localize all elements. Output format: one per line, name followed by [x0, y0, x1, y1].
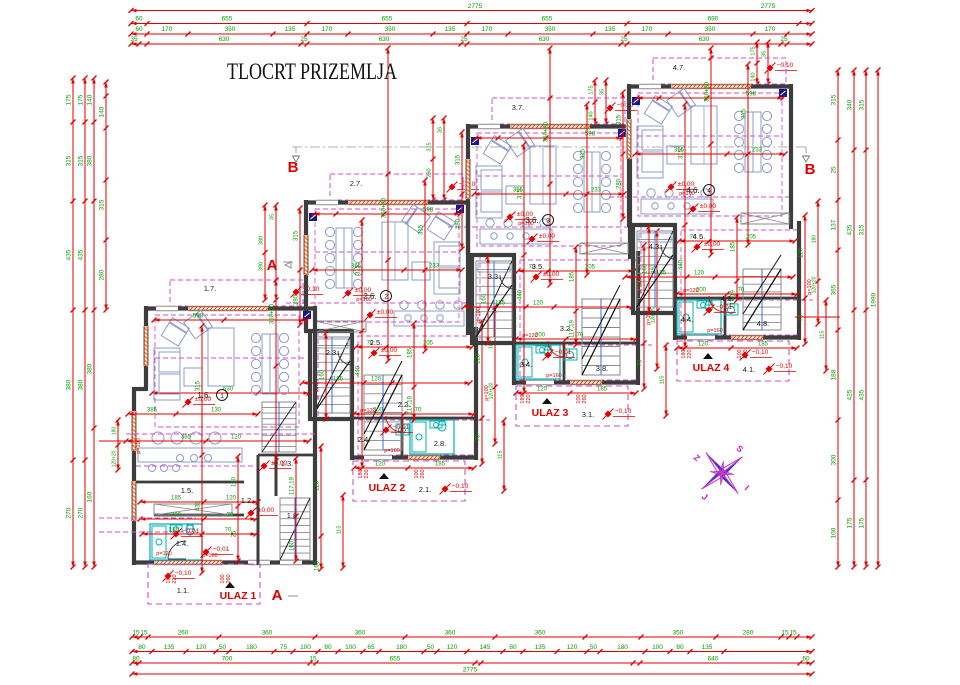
- svg-text:700: 700: [222, 656, 233, 663]
- svg-text:70: 70: [638, 359, 644, 366]
- svg-text:135: 135: [285, 26, 296, 33]
- svg-text:655: 655: [542, 16, 553, 23]
- svg-text:160: 160: [643, 263, 649, 274]
- svg-text:440: 440: [518, 289, 524, 300]
- svg-text:p=100: p=100: [484, 385, 490, 400]
- svg-text:315: 315: [99, 199, 106, 210]
- svg-text:15: 15: [309, 656, 317, 663]
- svg-text:1.4.: 1.4.: [176, 539, 189, 548]
- svg-text:185: 185: [597, 387, 608, 393]
- svg-text:385: 385: [181, 435, 192, 441]
- svg-text:220: 220: [364, 469, 370, 478]
- svg-text:70: 70: [476, 434, 482, 441]
- svg-text:4.7.: 4.7.: [673, 63, 686, 72]
- svg-text:p=100: p=100: [637, 277, 643, 292]
- svg-text:50: 50: [590, 644, 598, 651]
- svg-text:160: 160: [482, 293, 488, 304]
- svg-text:±0,00: ±0,00: [700, 203, 717, 210]
- svg-text:233: 233: [591, 188, 602, 194]
- svg-text:315: 315: [196, 380, 202, 391]
- svg-text:220: 220: [172, 574, 178, 583]
- svg-text:−0,10: −0,10: [776, 363, 793, 370]
- svg-text:80: 80: [324, 644, 332, 651]
- svg-text:140: 140: [589, 111, 595, 120]
- svg-text:185: 185: [333, 377, 344, 383]
- svg-text:270: 270: [78, 507, 85, 518]
- svg-text:175: 175: [589, 85, 595, 94]
- svg-text:350: 350: [225, 26, 236, 33]
- svg-text:260: 260: [226, 574, 232, 583]
- svg-text:1.1.: 1.1.: [177, 586, 190, 595]
- svg-text:2.1.: 2.1.: [419, 485, 432, 494]
- svg-text:2.3.: 2.3.: [326, 348, 339, 357]
- svg-text:25: 25: [232, 530, 238, 537]
- svg-text:3.7.: 3.7.: [512, 103, 525, 112]
- svg-text:35: 35: [438, 127, 444, 133]
- svg-text:350+20: 350+20: [382, 197, 388, 218]
- svg-text:425: 425: [847, 389, 854, 400]
- svg-text:70: 70: [415, 408, 422, 414]
- svg-text:2.4.: 2.4.: [358, 435, 371, 444]
- svg-text:35: 35: [130, 36, 138, 43]
- svg-text:−0,01: −0,01: [716, 304, 733, 311]
- svg-text:185: 185: [758, 342, 769, 348]
- svg-text:p=160: p=160: [707, 328, 722, 334]
- svg-text:350: 350: [673, 630, 684, 637]
- svg-text:2775: 2775: [761, 3, 776, 10]
- svg-text:70: 70: [227, 513, 234, 519]
- svg-text:185: 185: [435, 462, 446, 468]
- svg-text:120: 120: [231, 435, 242, 441]
- svg-text:p=160: p=160: [384, 448, 399, 454]
- svg-text:160: 160: [315, 560, 321, 571]
- svg-text:380: 380: [87, 363, 94, 374]
- svg-text:350: 350: [545, 26, 556, 33]
- svg-text:655: 655: [222, 16, 233, 23]
- svg-text:180: 180: [617, 644, 628, 651]
- svg-text:315: 315: [617, 114, 623, 125]
- svg-text:B: B: [805, 161, 816, 178]
- svg-text:115: 115: [660, 376, 666, 385]
- svg-text:3: 3: [546, 218, 550, 225]
- svg-text:±0,00: ±0,00: [271, 460, 288, 467]
- svg-text:3.1.: 3.1.: [582, 410, 595, 419]
- svg-text:360: 360: [535, 630, 546, 637]
- svg-text:±0,00: ±0,00: [195, 396, 212, 403]
- svg-text:4.8.: 4.8.: [757, 319, 770, 328]
- svg-text:350+20: 350+20: [544, 121, 550, 142]
- svg-text:2.8.: 2.8.: [434, 439, 447, 448]
- svg-text:ULAZ 1: ULAZ 1: [220, 590, 257, 602]
- svg-text:2: 2: [384, 294, 388, 301]
- svg-text:115: 115: [820, 331, 826, 340]
- svg-text:60: 60: [135, 26, 143, 33]
- svg-text:A: A: [267, 257, 278, 274]
- svg-text:100: 100: [345, 644, 356, 651]
- svg-text:170: 170: [482, 26, 493, 33]
- svg-text:300: 300: [831, 454, 838, 465]
- svg-text:3.3.: 3.3.: [488, 272, 501, 281]
- svg-text:170: 170: [642, 26, 653, 33]
- svg-text:115: 115: [498, 451, 504, 460]
- svg-text:180: 180: [812, 235, 818, 244]
- svg-text:630: 630: [223, 387, 234, 393]
- svg-text:280: 280: [617, 178, 623, 189]
- svg-text:±0,00: ±0,00: [258, 507, 275, 514]
- svg-text:115: 115: [337, 526, 343, 535]
- svg-text:175: 175: [78, 94, 85, 105]
- svg-text:360: 360: [262, 630, 273, 637]
- svg-text:±0,00: ±0,00: [543, 271, 560, 278]
- svg-text:70: 70: [738, 288, 745, 294]
- svg-text:315: 315: [831, 94, 838, 105]
- svg-text:630: 630: [379, 36, 390, 43]
- svg-text:A: A: [272, 587, 283, 604]
- svg-text:175: 175: [751, 46, 757, 55]
- svg-text:175: 175: [847, 517, 854, 528]
- svg-text:170: 170: [162, 26, 173, 33]
- svg-text:185: 185: [408, 347, 414, 358]
- svg-text:±0,00: ±0,00: [704, 241, 721, 248]
- svg-text:1: 1: [220, 393, 224, 400]
- svg-text:655: 655: [390, 656, 401, 663]
- svg-text:185: 185: [570, 271, 576, 282]
- svg-text:−0,10: −0,10: [452, 483, 469, 490]
- svg-text:120: 120: [799, 247, 805, 258]
- svg-text:170: 170: [322, 26, 333, 33]
- svg-text:315: 315: [456, 154, 462, 165]
- svg-text:1.7.: 1.7.: [204, 284, 217, 293]
- svg-text:3.4.: 3.4.: [520, 360, 533, 369]
- svg-text:630: 630: [699, 36, 710, 43]
- svg-text:135: 135: [605, 26, 616, 33]
- svg-text:365: 365: [513, 188, 524, 194]
- svg-text:p=120: p=120: [156, 551, 171, 557]
- svg-text:140: 140: [87, 94, 94, 105]
- svg-text:220: 220: [687, 349, 693, 358]
- svg-text:120: 120: [476, 353, 482, 364]
- svg-text:185: 185: [731, 241, 737, 252]
- svg-text:p=100: p=100: [476, 307, 482, 322]
- svg-text:120: 120: [694, 271, 705, 277]
- svg-text:25: 25: [620, 36, 628, 43]
- svg-text:280: 280: [294, 294, 300, 305]
- svg-text:598: 598: [193, 313, 204, 320]
- svg-text:440: 440: [356, 365, 362, 376]
- svg-text:175: 175: [859, 517, 866, 528]
- svg-text:350+20: 350+20: [705, 81, 711, 102]
- svg-text:50: 50: [219, 644, 227, 651]
- svg-text:15: 15: [140, 630, 148, 637]
- svg-text:170: 170: [765, 26, 776, 33]
- svg-text:−0,01: −0,01: [393, 424, 410, 431]
- svg-text:315: 315: [66, 155, 73, 166]
- svg-text:±0,00: ±0,00: [381, 347, 398, 354]
- svg-text:598: 598: [423, 207, 434, 214]
- svg-text:365: 365: [351, 264, 362, 270]
- svg-text:p=160: p=160: [546, 373, 561, 379]
- svg-text:100: 100: [831, 527, 838, 538]
- svg-text:188: 188: [831, 369, 838, 380]
- svg-text:1.5.: 1.5.: [181, 486, 194, 495]
- svg-text:p=120: p=120: [522, 333, 537, 339]
- svg-text:135: 135: [445, 26, 456, 33]
- svg-text:p=160: p=160: [679, 191, 694, 197]
- svg-text:160: 160: [290, 540, 296, 551]
- svg-text:630: 630: [219, 36, 230, 43]
- svg-text:±0,00: ±0,00: [539, 233, 556, 240]
- svg-text:p=120: p=120: [360, 408, 375, 414]
- svg-text:260: 260: [420, 469, 426, 478]
- svg-text:p=160: p=160: [518, 221, 533, 227]
- svg-text:−0,01: −0,01: [555, 349, 572, 356]
- svg-text:120: 120: [315, 480, 321, 491]
- svg-text:280: 280: [99, 269, 106, 280]
- svg-text:25: 25: [831, 166, 838, 174]
- svg-text:380: 380: [87, 155, 94, 166]
- svg-text:ULAZ 2: ULAZ 2: [369, 482, 406, 494]
- svg-text:205: 205: [423, 341, 434, 347]
- svg-text:35: 35: [600, 89, 606, 95]
- svg-text:205: 205: [746, 235, 757, 241]
- svg-text:655: 655: [382, 16, 393, 23]
- svg-text:185: 185: [656, 271, 667, 277]
- svg-text:2.2.: 2.2.: [398, 400, 411, 409]
- svg-text:180: 180: [112, 427, 118, 436]
- svg-text:233: 233: [752, 148, 763, 154]
- svg-text:640: 640: [708, 656, 719, 663]
- svg-text:315: 315: [294, 230, 300, 241]
- svg-text:120: 120: [567, 644, 578, 651]
- svg-text:ULAZ 4: ULAZ 4: [693, 362, 730, 374]
- svg-text:120: 120: [232, 476, 238, 487]
- svg-text:315: 315: [581, 148, 587, 159]
- svg-text:350: 350: [705, 26, 716, 33]
- svg-text:145: 145: [480, 644, 491, 651]
- svg-text:350+20: 350+20: [270, 303, 276, 324]
- svg-text:175: 175: [66, 94, 73, 105]
- svg-text:390: 390: [259, 262, 265, 271]
- svg-text:75: 75: [280, 644, 288, 651]
- svg-text:350: 350: [385, 26, 396, 33]
- svg-text:−0,10: −0,10: [777, 62, 794, 69]
- svg-text:380: 380: [78, 379, 85, 390]
- svg-text:50: 50: [427, 644, 435, 651]
- svg-text:440: 440: [679, 259, 685, 270]
- svg-text:120: 120: [196, 644, 207, 651]
- svg-text:15: 15: [132, 630, 140, 637]
- svg-text:1.2.: 1.2.: [241, 496, 254, 505]
- svg-text:−0,01: −0,01: [213, 546, 230, 553]
- svg-text:360: 360: [445, 630, 456, 637]
- svg-text:315: 315: [78, 155, 85, 166]
- svg-text:25: 25: [460, 36, 468, 43]
- svg-text:65: 65: [367, 644, 375, 651]
- svg-text:630: 630: [539, 36, 550, 43]
- svg-text:35: 35: [762, 51, 768, 57]
- svg-text:315: 315: [742, 108, 748, 119]
- svg-text:60: 60: [135, 16, 143, 23]
- svg-text:280: 280: [427, 168, 433, 177]
- svg-text:135: 135: [164, 644, 175, 651]
- svg-text:120: 120: [226, 496, 237, 502]
- svg-text:385: 385: [147, 408, 158, 414]
- svg-text:380: 380: [66, 379, 73, 390]
- svg-text:3.2.: 3.2.: [560, 324, 573, 333]
- svg-text:435: 435: [66, 249, 73, 260]
- svg-text:70: 70: [799, 314, 805, 321]
- svg-text:690: 690: [708, 16, 719, 23]
- svg-text:260: 260: [743, 349, 749, 358]
- svg-text:120+20: 120+20: [112, 450, 118, 467]
- svg-text:±0,00: ±0,00: [377, 309, 394, 316]
- svg-text:80: 80: [138, 644, 146, 651]
- svg-text:35: 35: [270, 214, 276, 220]
- svg-text:2.7.: 2.7.: [350, 179, 363, 188]
- svg-text:80: 80: [132, 656, 140, 663]
- svg-text:160: 160: [320, 369, 326, 380]
- svg-text:598: 598: [585, 131, 596, 138]
- svg-text:p=100: p=100: [807, 279, 813, 294]
- svg-text:315: 315: [859, 224, 866, 235]
- svg-text:120: 120: [537, 387, 548, 393]
- svg-text:120: 120: [447, 644, 458, 651]
- svg-text:120: 120: [533, 301, 544, 307]
- svg-text:p=160: p=160: [356, 297, 371, 303]
- svg-text:315: 315: [419, 224, 425, 235]
- svg-text:2.5.: 2.5.: [370, 338, 383, 347]
- svg-text:120: 120: [371, 377, 382, 383]
- svg-text:4.4.: 4.4.: [681, 315, 694, 324]
- svg-text:260: 260: [178, 630, 189, 637]
- svg-text:365: 365: [674, 148, 685, 154]
- svg-text:185: 185: [171, 496, 182, 502]
- svg-text:p=120: p=120: [683, 288, 698, 294]
- svg-text:100: 100: [300, 644, 311, 651]
- svg-text:180: 180: [396, 644, 407, 651]
- svg-text:135: 135: [702, 644, 713, 651]
- svg-text:3.8.: 3.8.: [596, 364, 609, 373]
- svg-text:60: 60: [802, 656, 810, 663]
- svg-text:25: 25: [300, 36, 308, 43]
- svg-text:205: 205: [585, 265, 596, 271]
- svg-text:260: 260: [582, 394, 588, 403]
- svg-text:160: 160: [87, 491, 94, 502]
- svg-text:340: 340: [847, 99, 854, 110]
- svg-text:120: 120: [375, 462, 386, 468]
- svg-text:4: 4: [707, 188, 711, 195]
- svg-text:140: 140: [99, 106, 106, 117]
- svg-text:220: 220: [526, 394, 532, 403]
- svg-text:280: 280: [743, 630, 754, 637]
- svg-text:4.1.: 4.1.: [743, 365, 756, 374]
- svg-text:598: 598: [746, 91, 757, 98]
- svg-text:360: 360: [355, 630, 366, 637]
- svg-text:180: 180: [246, 644, 257, 651]
- svg-text:117,19: 117,19: [290, 476, 296, 495]
- svg-text:2775: 2775: [463, 667, 478, 674]
- svg-text:435: 435: [847, 224, 854, 235]
- svg-text:137: 137: [831, 219, 838, 230]
- svg-text:280: 280: [456, 218, 462, 229]
- svg-text:130: 130: [211, 408, 222, 414]
- svg-text:80: 80: [676, 644, 684, 651]
- svg-text:80: 80: [509, 644, 517, 651]
- svg-text:365: 365: [831, 284, 838, 295]
- svg-text:270: 270: [66, 507, 73, 518]
- svg-text:120: 120: [698, 342, 709, 348]
- svg-text:3.5.: 3.5.: [532, 262, 545, 271]
- svg-text:4.3.: 4.3.: [649, 242, 662, 251]
- svg-text:15: 15: [789, 630, 797, 637]
- svg-text:1990: 1990: [871, 292, 878, 307]
- svg-text:185: 185: [495, 301, 506, 307]
- svg-text:435: 435: [78, 249, 85, 260]
- svg-text:140: 140: [751, 72, 757, 81]
- svg-text:315: 315: [859, 99, 866, 110]
- svg-text:ULAZ 3: ULAZ 3: [532, 407, 569, 419]
- svg-text:B: B: [288, 159, 299, 176]
- svg-text:25: 25: [780, 36, 788, 43]
- svg-text:TLOCRT PRIZEMLJA: TLOCRT PRIZEMLJA: [227, 59, 397, 85]
- svg-text:15: 15: [781, 630, 789, 637]
- svg-text:4.2.: 4.2.: [721, 294, 734, 303]
- svg-text:100: 100: [652, 644, 663, 651]
- svg-text:380: 380: [259, 236, 265, 245]
- svg-text:4.5.: 4.5.: [693, 232, 706, 241]
- svg-text:233: 233: [429, 264, 440, 270]
- svg-text:185: 185: [169, 528, 180, 534]
- svg-text:−0,10: −0,10: [752, 349, 769, 356]
- svg-text:135: 135: [535, 644, 546, 651]
- svg-text:70: 70: [577, 333, 584, 339]
- svg-text:435: 435: [859, 389, 866, 400]
- svg-text:2775: 2775: [468, 3, 483, 10]
- svg-text:−0,10: −0,10: [615, 408, 632, 415]
